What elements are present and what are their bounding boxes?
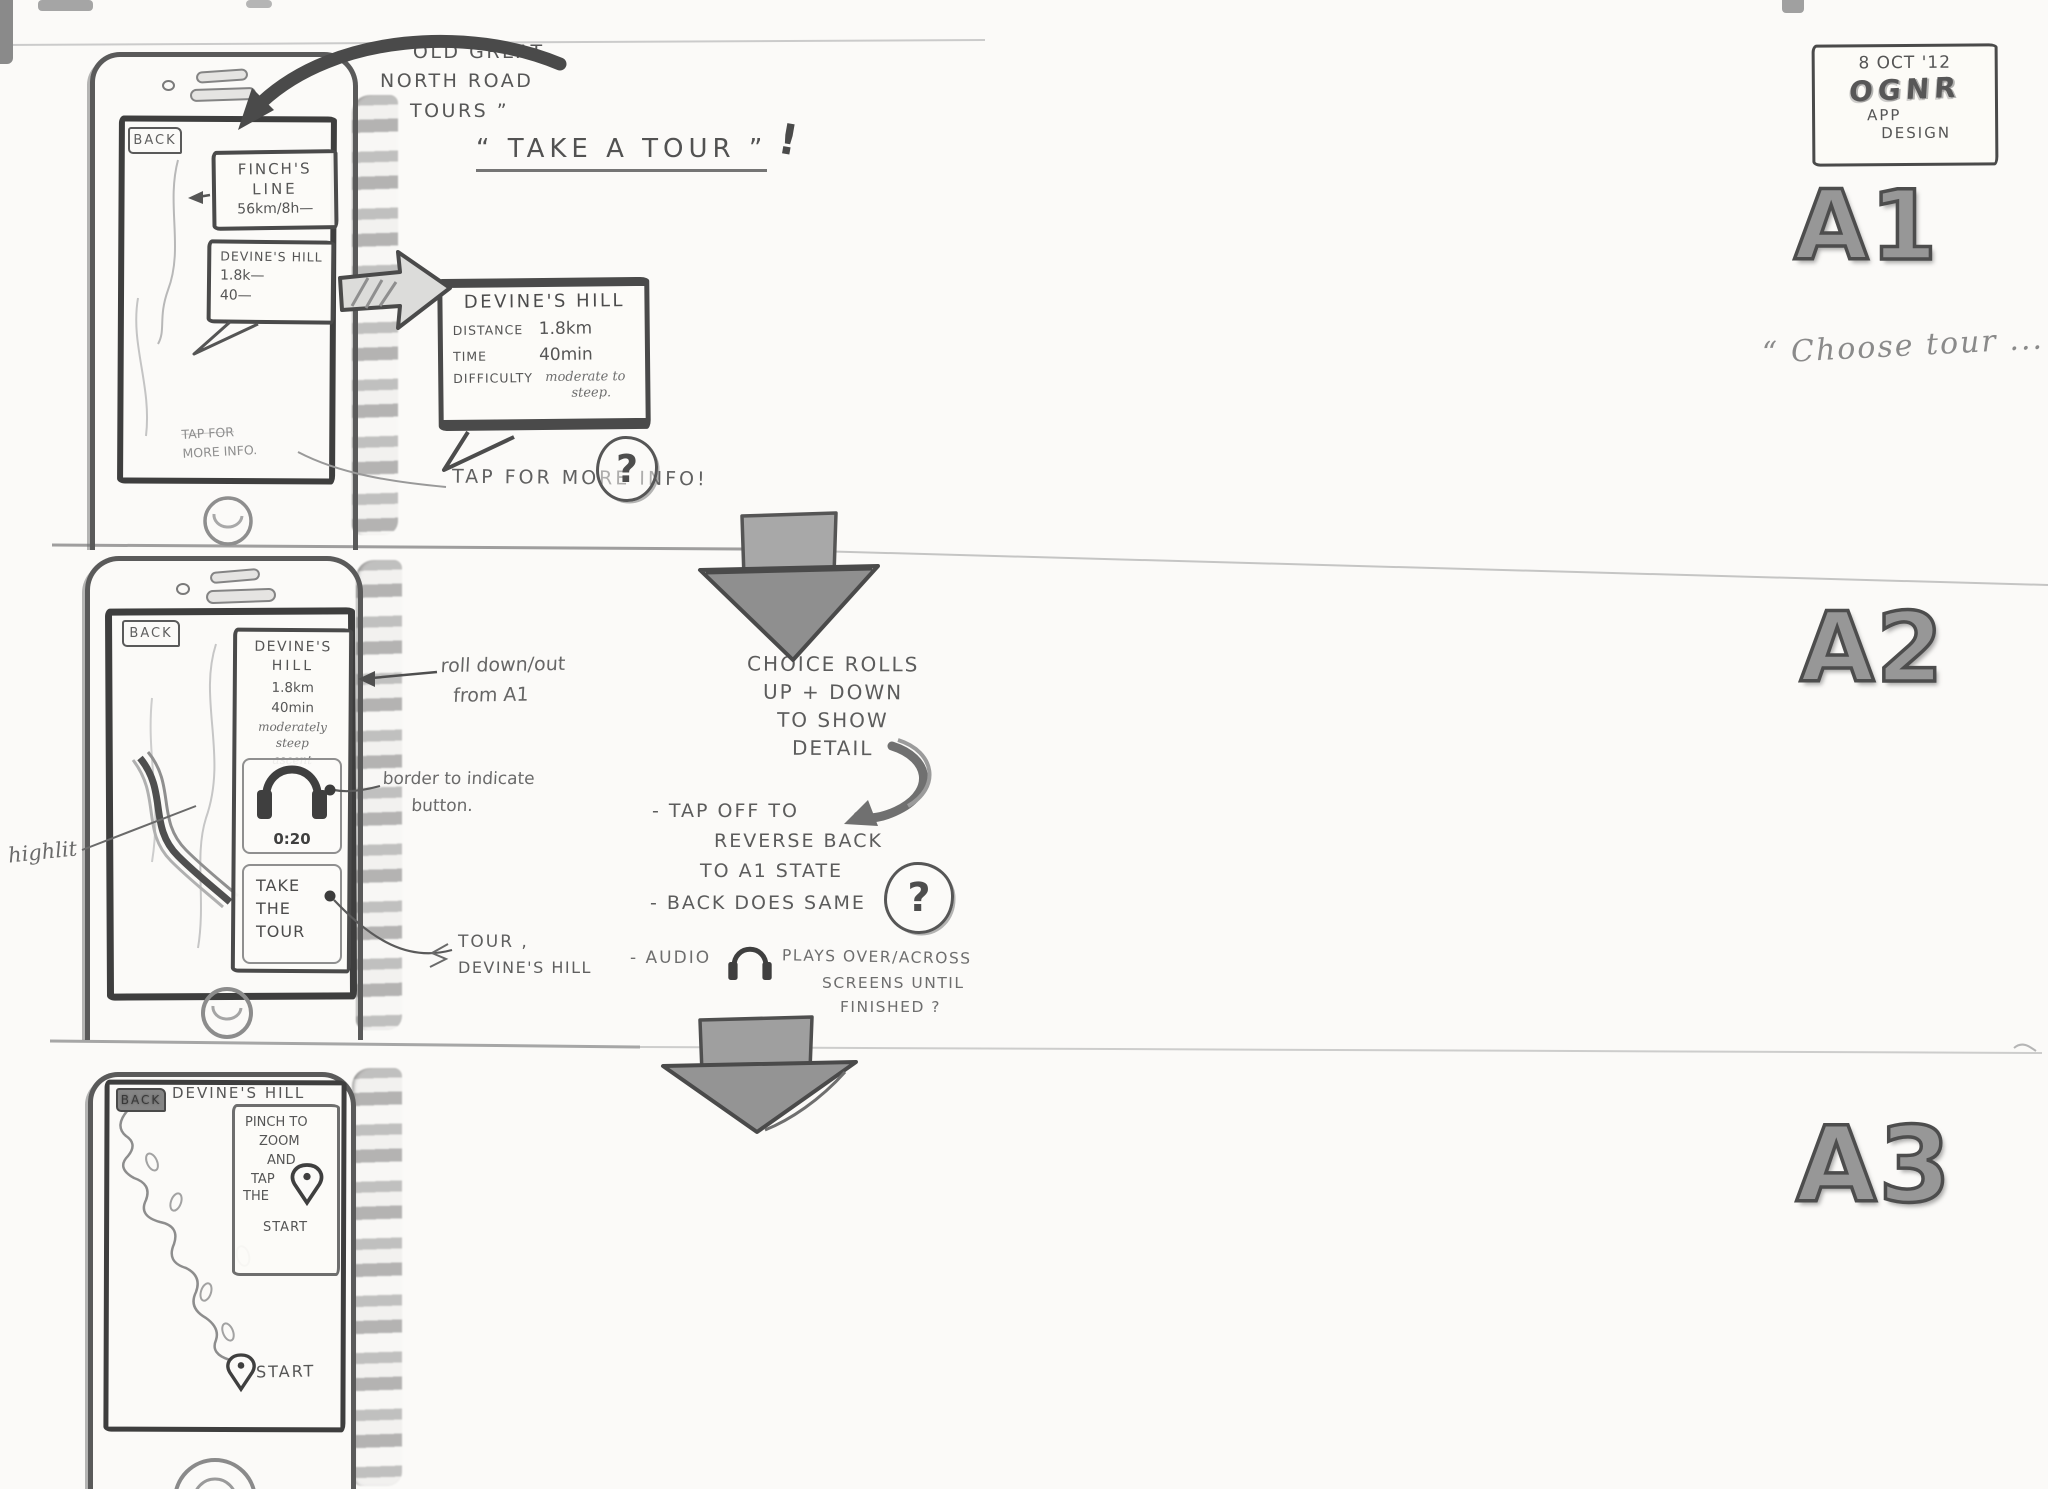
tour-ref-connector — [325, 891, 453, 968]
tap-hint-connector — [298, 452, 446, 487]
home-button-icon — [175, 1460, 255, 1489]
popup-speech-tail — [444, 432, 514, 470]
home-button-icon — [205, 498, 251, 544]
detail-popup-arrow — [340, 252, 450, 328]
map-pin-icon — [293, 1165, 322, 1203]
highlit-connector — [82, 806, 196, 850]
flow-down-arrow-2 — [663, 1017, 856, 1132]
flow-down-arrow-1 — [700, 513, 878, 660]
card-speech-tail — [194, 322, 258, 354]
sketch-overlay-strokes — [0, 0, 2048, 1489]
headphones-icon — [257, 770, 327, 820]
border-button-connector — [325, 785, 381, 796]
scanned-sketch-page: BACK FINCH'S LINE 56km/8h— DEVINE'S HILL… — [0, 0, 2048, 1489]
roll-down-connector — [358, 671, 437, 687]
home-button-icon — [203, 989, 251, 1037]
tour-card-pointer-arrow — [188, 191, 210, 204]
headphones-icon — [728, 949, 771, 980]
app-name-arrow — [238, 41, 560, 130]
reverse-curl-arrow — [844, 740, 930, 826]
map-pin-icon — [228, 1355, 254, 1389]
